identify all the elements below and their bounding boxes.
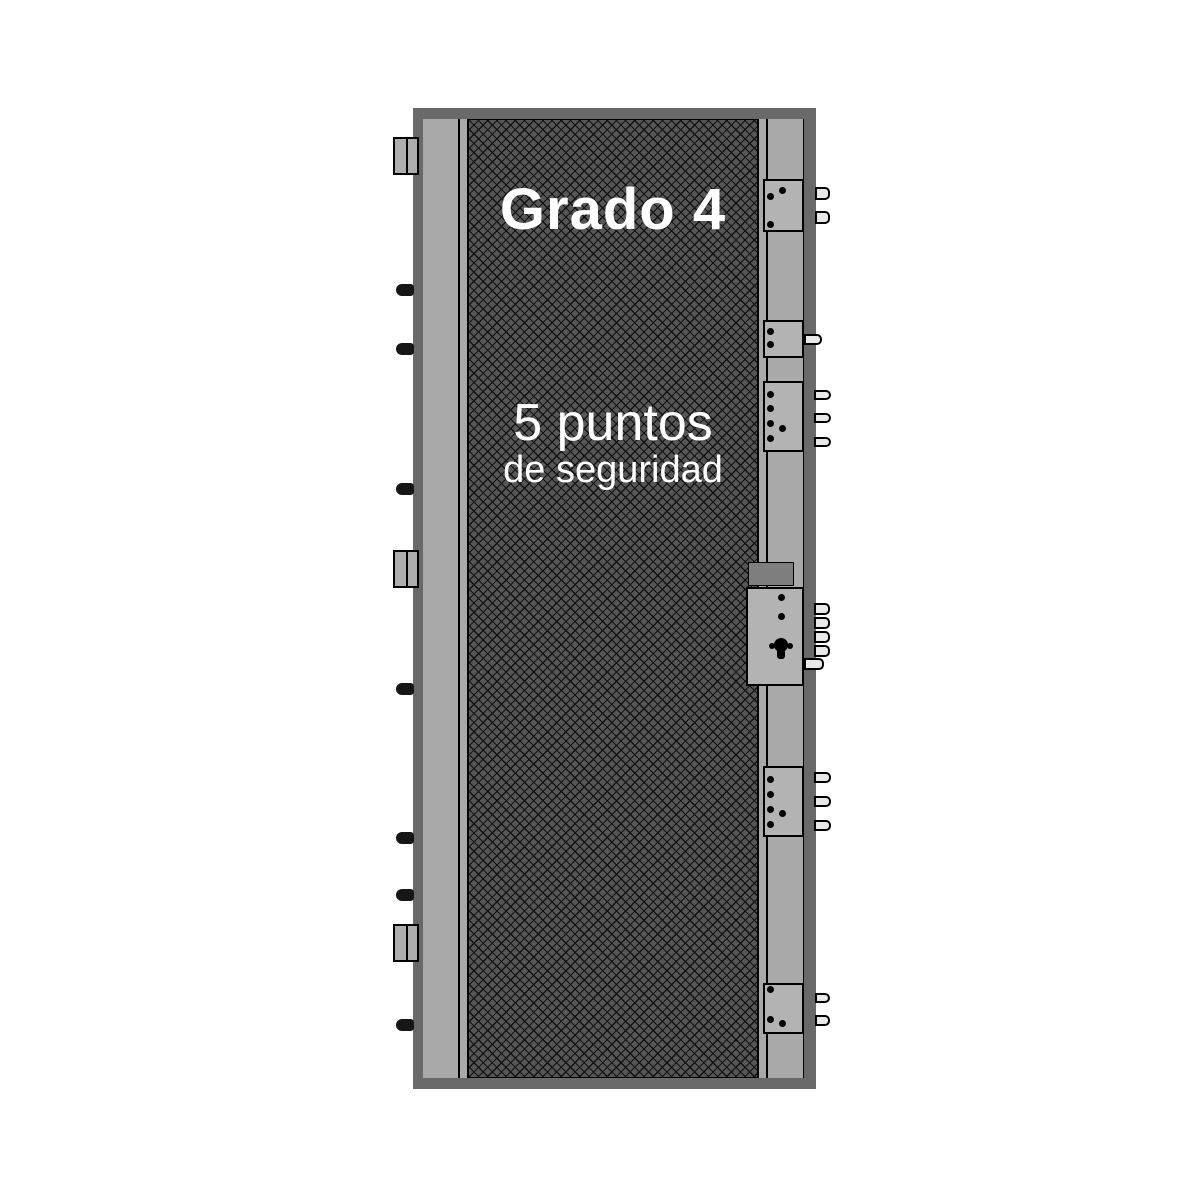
screw-dot-icon <box>767 791 774 798</box>
screw-dot-icon <box>767 341 774 348</box>
lock-bolt <box>814 796 831 807</box>
screw-dot-icon <box>767 420 774 427</box>
main-lock-body <box>746 587 804 686</box>
lock-bolt <box>814 413 831 423</box>
door-armored-core-panel: Grado 4 5 puntos de seguridad <box>468 119 758 1078</box>
lock-bolt <box>814 820 831 831</box>
lock-bolt <box>815 993 830 1003</box>
screw-dot-icon <box>779 425 786 432</box>
screw-dot-icon <box>778 594 785 601</box>
screw-dot-icon <box>779 187 786 194</box>
hinge-plate-divider <box>406 552 408 586</box>
lock-bolt <box>814 603 830 615</box>
lock-point-block <box>763 320 804 358</box>
hinge-pin-icon <box>396 343 414 355</box>
security-points-label-line2: de seguridad <box>469 451 757 489</box>
lock-bolt <box>815 211 830 224</box>
lock-follower-square <box>748 562 794 586</box>
screw-dot-icon <box>767 1016 774 1023</box>
hinge-plate-divider <box>406 139 408 173</box>
keyhole-side-dot <box>787 643 793 649</box>
hinge-plate-divider <box>406 926 408 960</box>
hinge-plate <box>393 550 419 588</box>
lock-bolt <box>814 437 831 447</box>
lock-bolt <box>815 187 830 200</box>
lock-bolt <box>814 772 831 783</box>
screw-dot-icon <box>767 806 774 813</box>
lock-bolt <box>814 390 831 400</box>
screw-dot-icon <box>767 391 774 398</box>
security-points-label-line1: 5 puntos <box>469 397 757 449</box>
security-door-illustration: Grado 4 5 puntos de seguridad <box>0 0 1200 1200</box>
screw-dot-icon <box>767 821 774 828</box>
lock-bolt <box>814 645 830 657</box>
lock-bolt <box>814 617 830 629</box>
hinge-pin-icon <box>396 483 414 495</box>
screw-dot-icon <box>767 405 774 412</box>
hinge-plate <box>393 137 419 175</box>
screw-dot-icon <box>778 613 785 620</box>
door-hinge-stile <box>423 119 459 1078</box>
door-left-reinforcement-strip <box>459 119 468 1078</box>
hinge-pin-icon <box>396 683 414 695</box>
lock-bolt <box>804 658 824 670</box>
screw-dot-icon <box>779 1020 786 1027</box>
screw-dot-icon <box>767 986 774 993</box>
lock-bolt <box>815 1015 830 1026</box>
grade-label: Grado 4 <box>469 181 757 239</box>
hinge-plate <box>393 924 419 962</box>
screw-dot-icon <box>767 776 774 783</box>
screw-dot-icon <box>767 221 774 228</box>
keyhole-side-dot <box>769 643 775 649</box>
keyhole-stem <box>777 645 785 659</box>
hinge-pin-icon <box>396 889 414 901</box>
lock-bolt <box>814 631 830 643</box>
screw-dot-icon <box>767 193 774 200</box>
hinge-pin-icon <box>396 284 414 296</box>
lock-bolt <box>804 334 822 345</box>
hinge-pin-icon <box>396 1019 414 1031</box>
screw-dot-icon <box>779 810 786 817</box>
screw-dot-icon <box>767 435 774 442</box>
screw-dot-icon <box>767 328 774 335</box>
hinge-pin-icon <box>396 832 414 844</box>
